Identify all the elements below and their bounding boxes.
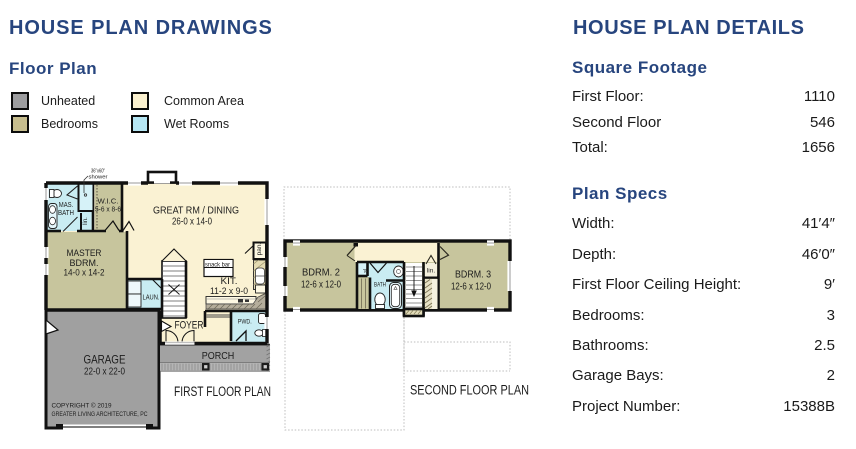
svg-text:5-6 x 8-6: 5-6 x 8-6 — [95, 207, 121, 214]
svg-text:SECOND FLOOR PLAN: SECOND FLOOR PLAN — [410, 383, 529, 398]
svg-text:12-6 x 12-0: 12-6 x 12-0 — [451, 282, 491, 293]
svg-text:14-0 x 14-2: 14-0 x 14-2 — [64, 268, 105, 278]
svg-text:BATH: BATH — [374, 282, 386, 289]
svg-text:GREAT RM / DINING: GREAT RM / DINING — [153, 205, 239, 217]
svg-text:PWD.: PWD. — [238, 319, 252, 326]
svg-text:11-2 x 9-0: 11-2 x 9-0 — [210, 286, 248, 296]
svg-text:COPYRIGHT © 2019: COPYRIGHT © 2019 — [52, 402, 113, 410]
svg-text:lin.: lin. — [83, 217, 89, 225]
svg-text:W.I.C.: W.I.C. — [98, 197, 119, 206]
svg-text:shower: shower — [89, 175, 108, 181]
svg-text:GREATER LIVING ARCHITECTURE, P: GREATER LIVING ARCHITECTURE, PC — [52, 411, 148, 418]
svg-text:LAUN.: LAUN. — [143, 293, 160, 302]
svg-text:26-0 x 14-0: 26-0 x 14-0 — [172, 217, 212, 228]
svg-text:lin.: lin. — [427, 268, 436, 275]
svg-text:FIRST FLOOR PLAN: FIRST FLOOR PLAN — [174, 384, 271, 399]
svg-text:snack bar: snack bar — [205, 262, 231, 269]
svg-text:BDRM. 2: BDRM. 2 — [302, 268, 340, 279]
svg-text:BDRM. 3: BDRM. 3 — [455, 270, 491, 281]
svg-text:12-6 x 12-0: 12-6 x 12-0 — [301, 280, 341, 291]
svg-text:PORCH: PORCH — [202, 350, 235, 362]
svg-text:pan.: pan. — [256, 242, 263, 255]
svg-text:GARAGE: GARAGE — [84, 353, 126, 367]
svg-text:FOYER: FOYER — [175, 320, 204, 332]
svg-text:22-0 x 22-0: 22-0 x 22-0 — [84, 366, 125, 378]
svg-text:BATH: BATH — [58, 208, 74, 217]
svg-text:sl.: sl. — [363, 267, 369, 273]
